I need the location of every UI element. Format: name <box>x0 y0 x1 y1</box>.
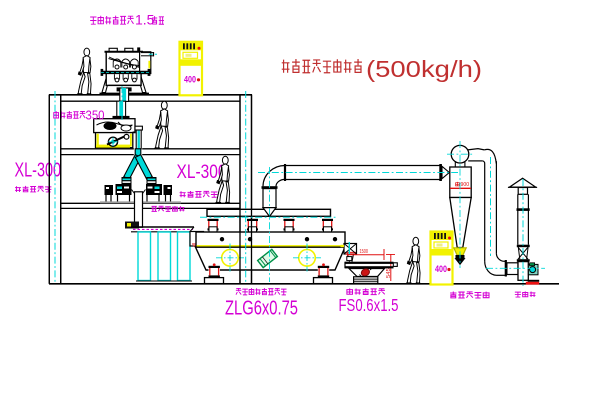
svg-text:400: 400 <box>184 74 196 85</box>
svg-text:ZLG6x0.75: ZLG6x0.75 <box>225 298 298 320</box>
svg-text:XL-300: XL-300 <box>15 160 62 182</box>
svg-text:(500kg/h): (500kg/h) <box>366 56 482 82</box>
svg-text:900: 900 <box>461 182 470 188</box>
svg-text:1.5: 1.5 <box>135 12 155 28</box>
svg-text:400: 400 <box>435 264 447 275</box>
svg-text:545: 545 <box>386 268 392 278</box>
svg-text:FS0.6x1.5: FS0.6x1.5 <box>339 295 399 315</box>
svg-text:350: 350 <box>86 108 105 123</box>
svg-text:1500: 1500 <box>360 249 369 255</box>
